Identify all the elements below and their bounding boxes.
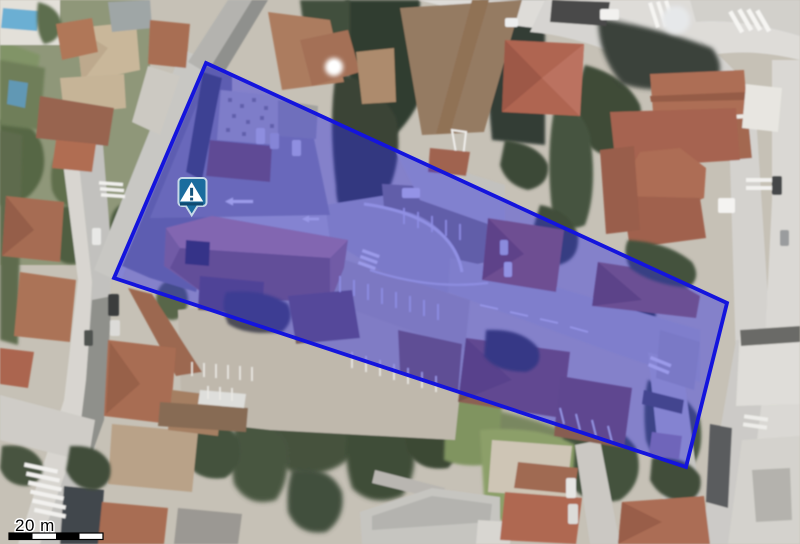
svg-text:20 m: 20 m <box>15 516 55 535</box>
